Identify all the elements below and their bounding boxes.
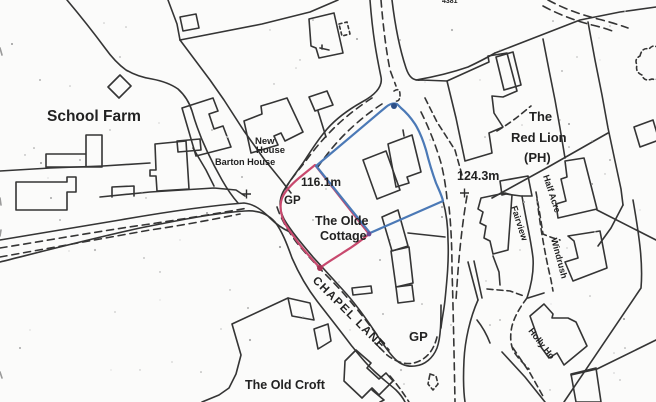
- svg-text:Red Lion: Red Lion: [511, 130, 567, 145]
- svg-text:Barton House: Barton House: [215, 157, 275, 167]
- svg-text:House: House: [256, 145, 285, 156]
- svg-text:(PH): (PH): [524, 150, 551, 165]
- svg-text:The: The: [529, 109, 552, 124]
- svg-text:GP: GP: [409, 329, 428, 344]
- svg-text:The Old Croft: The Old Croft: [245, 378, 326, 392]
- svg-text:GP: GP: [284, 195, 301, 207]
- svg-text:4381: 4381: [442, 0, 458, 5]
- svg-text:The Olde: The Olde: [315, 214, 369, 228]
- svg-text:124.3m: 124.3m: [457, 169, 499, 183]
- svg-text:Cottage: Cottage: [320, 229, 367, 243]
- svg-text:School Farm: School Farm: [47, 108, 141, 125]
- svg-text:116.1m: 116.1m: [301, 175, 341, 189]
